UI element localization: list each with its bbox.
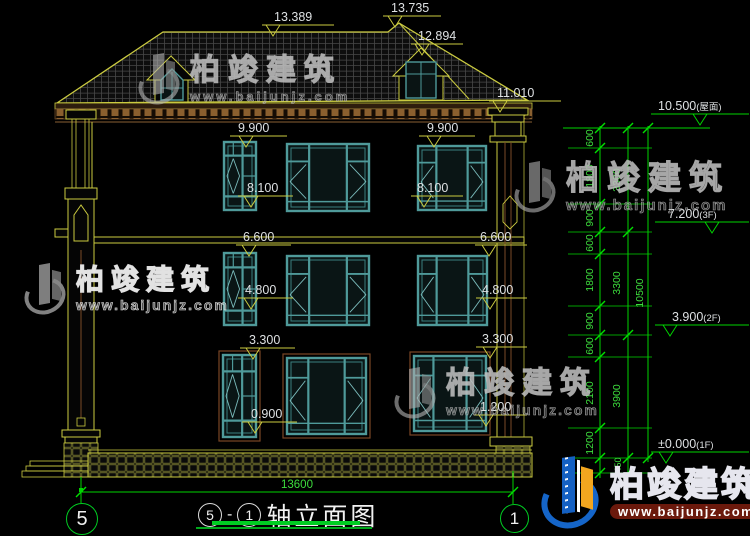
window [410, 352, 490, 435]
svg-text:9.900: 9.900 [238, 121, 269, 135]
svg-text:8.100: 8.100 [247, 181, 278, 195]
svg-text:900: 900 [584, 209, 596, 227]
window [287, 144, 369, 211]
window [287, 256, 369, 325]
svg-text:4.800: 4.800 [482, 283, 513, 297]
cad-elevation-drawing: 13.38913.73512.89411.0109.9009.9008.1008… [0, 0, 750, 536]
dimension-chain: 6001800900600180090060021001200450330033… [563, 123, 710, 478]
svg-text:600: 600 [584, 129, 596, 147]
svg-text:3300: 3300 [611, 168, 623, 192]
svg-text:3900: 3900 [611, 384, 623, 408]
svg-text:900: 900 [584, 312, 596, 330]
eave-cornice [55, 103, 532, 122]
svg-text:13.389: 13.389 [274, 10, 312, 24]
brand-logo: 柏竣建筑 www.baijunjz.com [540, 453, 750, 533]
svg-text:1800: 1800 [584, 164, 596, 188]
svg-text:3.900(2F): 3.900(2F) [672, 310, 721, 324]
title-underline-thin [196, 527, 372, 529]
svg-text:12.894: 12.894 [418, 29, 456, 43]
svg-text:7.200(3F): 7.200(3F) [668, 207, 717, 221]
svg-text:1.200: 1.200 [480, 400, 511, 414]
svg-text:9.900: 9.900 [427, 121, 458, 135]
window [283, 354, 370, 438]
svg-text:6.600: 6.600 [243, 230, 274, 244]
svg-text:13.735: 13.735 [391, 1, 429, 15]
svg-text:11.010: 11.010 [497, 86, 534, 100]
right-level-markers: 10.500(屋面)7.200(3F)3.900(2F)±0.000(1F) [651, 99, 749, 463]
left-column [62, 110, 100, 477]
svg-text:600: 600 [584, 337, 596, 355]
svg-text:1200: 1200 [584, 431, 596, 455]
axis-bubble-5: 5 [66, 503, 98, 535]
window [418, 256, 487, 325]
svg-text:8.100: 8.100 [417, 181, 448, 195]
svg-text:2100: 2100 [584, 381, 596, 405]
svg-text:10500: 10500 [634, 278, 646, 307]
svg-text:±0.000(1F): ±0.000(1F) [658, 437, 714, 451]
svg-text:3300: 3300 [611, 271, 623, 295]
svg-text:0.900: 0.900 [251, 407, 282, 421]
svg-text:10.500(屋面): 10.500(屋面) [658, 99, 722, 113]
svg-text:13600: 13600 [281, 479, 313, 491]
window [224, 142, 256, 210]
svg-text:6.600: 6.600 [480, 230, 511, 244]
brand-name: 柏竣建筑 [610, 468, 750, 502]
axis-bubble-1: 1 [500, 504, 529, 533]
svg-text:3.300: 3.300 [482, 332, 513, 346]
svg-text:1800: 1800 [584, 268, 596, 292]
title-underline-thick [212, 521, 360, 525]
svg-text:3.300: 3.300 [249, 333, 280, 347]
svg-text:4.800: 4.800 [245, 283, 276, 297]
brand-url: www.baijunjz.com [610, 504, 750, 519]
brand-building-icon [540, 453, 606, 533]
window [219, 351, 260, 441]
svg-text:600: 600 [584, 234, 596, 252]
base-plinth [22, 450, 532, 477]
roof [57, 23, 527, 103]
